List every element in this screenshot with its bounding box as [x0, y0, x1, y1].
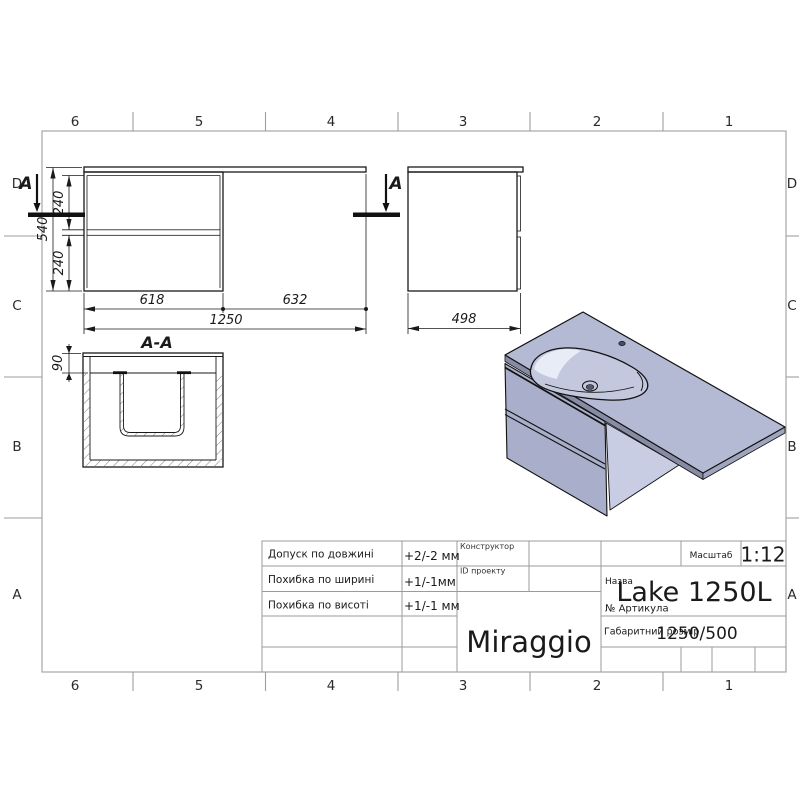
front-view: 618 632 1250 540 240 240 A A — [17, 167, 402, 334]
dim-240-bottom: 240 — [52, 251, 67, 276]
zone-row-label: B — [787, 439, 796, 455]
basin-lip-left — [113, 371, 127, 374]
zone-col-label: 6 — [71, 678, 80, 694]
article-label: № Артикула — [605, 604, 669, 615]
basin-lip-right — [177, 371, 191, 374]
dim-618: 618 — [140, 293, 165, 308]
dim-540: 540 — [36, 217, 51, 242]
zone-col-label: 3 — [459, 678, 468, 694]
zone-col-label: 5 — [195, 678, 204, 694]
section-letter: A — [387, 174, 402, 194]
zone-col-label: 1 — [725, 114, 734, 130]
zone-col-label: 4 — [327, 678, 336, 694]
zone-col-label: 3 — [459, 114, 468, 130]
dim-498: 498 — [452, 312, 477, 327]
zone-col-label: 2 — [593, 114, 602, 130]
section-hatching — [84, 373, 222, 466]
zone-row-label: C — [787, 298, 796, 314]
tolerance-width-label: Похибка по ширині — [268, 574, 374, 586]
zone-col-label: 4 — [327, 114, 336, 130]
tolerance-length-label: Допуск по довжині — [268, 549, 374, 561]
dim-240-top: 240 — [52, 191, 67, 216]
drawing-sheet: 6 5 4 3 2 1 6 5 4 3 2 1 D C B A D C B A — [0, 0, 800, 800]
tolerance-width-value: +1/-1мм — [404, 575, 456, 589]
section-arrow-right: A — [353, 174, 403, 217]
brand-logo: Miraggio — [466, 625, 591, 659]
zone-col-label: 6 — [71, 114, 80, 130]
section-title: A-A — [139, 333, 172, 352]
zone-row-label: C — [12, 298, 21, 314]
drain-hole — [586, 385, 594, 390]
front-view-drawer-gaps — [87, 176, 220, 289]
zone-row-label: A — [787, 587, 797, 603]
constructor-label: Конструктор — [460, 542, 514, 551]
zone-row-label: D — [787, 176, 797, 192]
technical-drawing: 6 5 4 3 2 1 6 5 4 3 2 1 D C B A D C B A — [0, 0, 800, 800]
section-letter: A — [17, 174, 32, 194]
section-inner-lines — [83, 357, 223, 461]
side-view: 498 — [408, 167, 523, 334]
zone-col-label: 5 — [195, 114, 204, 130]
zone-col-label: 1 — [725, 678, 734, 694]
title-block: Допуск по довжині +2/-2 мм Похибка по ши… — [262, 541, 786, 672]
front-view-outline — [84, 167, 366, 291]
scale-value: 1:12 — [741, 543, 786, 567]
section-outline — [83, 353, 223, 467]
tolerance-height-value: +1/-1 мм — [404, 599, 460, 613]
faucet-hole — [619, 341, 625, 345]
tolerance-table: Допуск по довжині +2/-2 мм Похибка по ши… — [268, 549, 460, 614]
zone-col-label: 2 — [593, 678, 602, 694]
section-view: A-A 90 — [51, 333, 223, 467]
dim-632: 632 — [283, 293, 308, 308]
project-id-label: ID проекту — [460, 567, 506, 576]
front-view-dimension-lines — [53, 168, 368, 330]
zone-row-label: B — [12, 439, 21, 455]
scale-label: Масштаб — [690, 551, 733, 561]
iso-3d-view — [505, 312, 785, 516]
zone-row-label: A — [12, 587, 22, 603]
tolerance-height-label: Похибка по висоті — [268, 600, 369, 612]
dim-90: 90 — [51, 355, 66, 372]
dim-1250: 1250 — [209, 313, 242, 328]
tolerance-length-value: +2/-2 мм — [404, 549, 460, 563]
overall-size-value: 1250/500 — [656, 624, 737, 644]
